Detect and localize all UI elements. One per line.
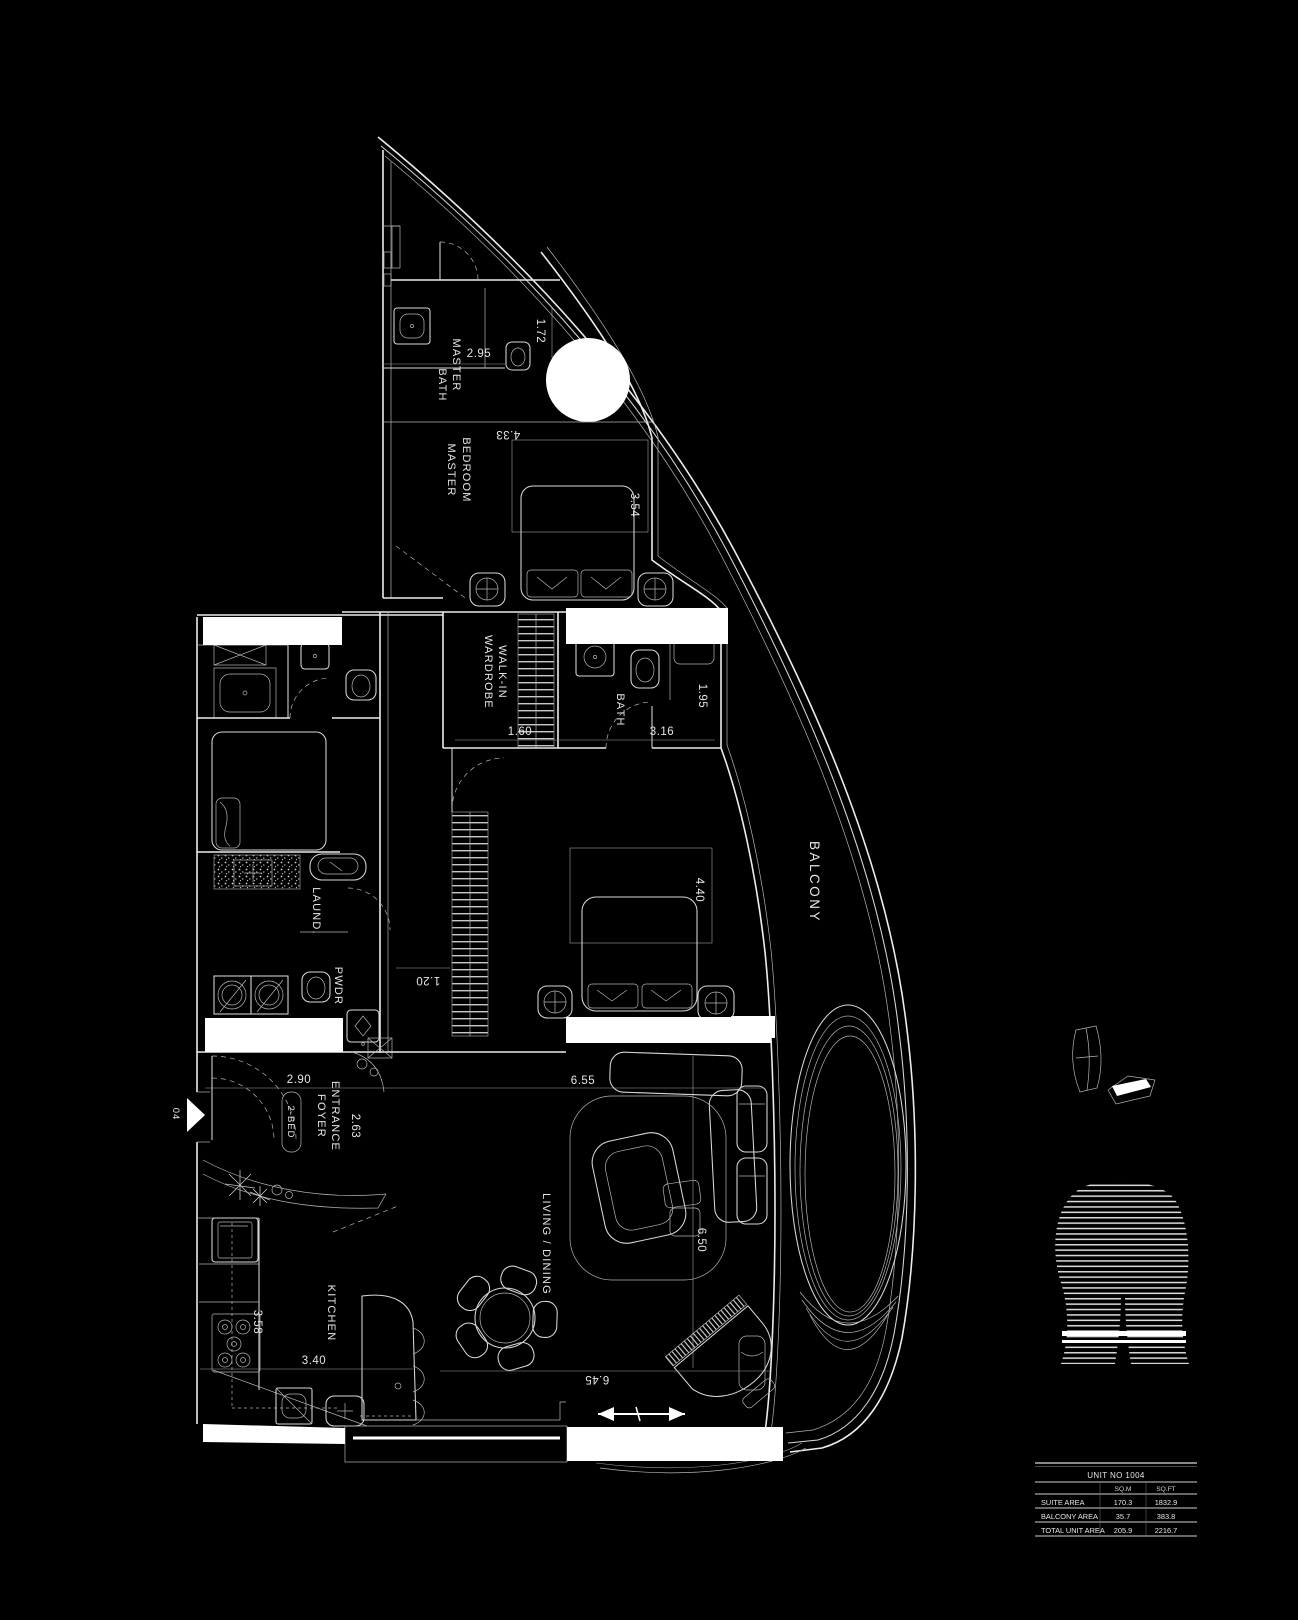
kitchen-island [362,1295,424,1425]
balcony-inner-wall [541,247,781,1432]
kitchen-label: KITCHEN [325,1285,337,1342]
bed2 [582,897,697,1011]
dim-living-south-width: 6.45 [585,1373,609,1385]
dim-bath-width: 3.16 [650,726,674,738]
master-bedroom: MASTER BEDROOM 4.33 3.54 [383,422,673,606]
total-area-sqm: 205.9 [1114,1526,1133,1535]
laundry-sink [310,854,366,880]
washer-dryer [214,976,288,1014]
entrance-foyer: 2.90 04 2-BED ENTRANCE FOYER 2.63 [170,1038,763,1232]
area-table: UNIT NO 1004 SQ.M SQ.FT SUITE AREA 170.3… [1035,1463,1197,1536]
master-bath-tub [546,338,630,422]
area-table-row-suite: SUITE AREA 170.3 1832.9 [1041,1498,1177,1507]
floor-plan-canvas: BALCONY [0,0,1298,1620]
master-bath: MASTER BATH 2.95 1.72 [383,150,630,598]
dim-kitchen-width: 3.40 [302,1355,326,1367]
unit-type-tag-label: 2-BED [285,1106,296,1139]
wardrobe-label-line2: WARDROBE [482,635,494,709]
entry-arrow-icon [187,1098,205,1132]
powder-label: PWDR [332,967,344,1005]
balcony-area-sqft: 383.8 [1157,1512,1176,1521]
living-dining-label: LIVING / DINING [540,1193,552,1295]
sofa [570,1052,757,1280]
dim-living-width: 6.55 [571,1075,595,1087]
total-area-sqft: 2216.7 [1155,1526,1178,1535]
dim-master-bedroom-width: 4.33 [496,428,520,440]
floor-plan-page: BALCONY [0,0,1298,1620]
entry-marker-label: 04 [170,1108,181,1121]
maid-bed [212,732,326,850]
balcony-area-sqm: 35.7 [1116,1512,1130,1521]
dim-living-depth: 6.50 [695,1228,707,1252]
dim-foyer-width: 2.90 [287,1074,311,1086]
tower-silhouette [1055,1181,1189,1364]
dim-bedroom2-depth: 4.40 [693,878,705,902]
area-table-row-total: TOTAL UNIT AREA 205.9 2216.7 [1041,1526,1177,1535]
total-area-label: TOTAL UNIT AREA [1041,1526,1105,1535]
master-bed-nightstands [470,573,673,606]
foyer-label-line2: FOYER [315,1094,327,1138]
suite-area-label: SUITE AREA [1041,1498,1085,1507]
master-bath-label-line2: BATH [436,368,448,401]
laundry-label: LAUND. [310,887,322,935]
kitchen: KITCHEN 3.58 3.40 [197,1218,424,1426]
sliding-door-arrows [598,1407,685,1421]
dim-wardrobe-width: 1.60 [508,726,532,738]
dim-kitchen-depth: 3.58 [251,1310,263,1334]
key-plan-unit-highlight [1112,1079,1151,1096]
balcony-area-label: BALCONY AREA [1041,1512,1098,1521]
key-plan [1055,1026,1189,1364]
area-table-col-sqft: SQ.FT [1156,1486,1175,1493]
area-table-title: UNIT NO 1004 [1087,1471,1145,1480]
suite-area-sqft: 1832.9 [1155,1498,1178,1507]
dim-master-bath-depth: 1.72 [534,319,546,343]
bathroom2 [197,643,380,718]
dim-bath-depth: 1.95 [696,684,708,708]
balcony-loungers [737,1086,767,1390]
master-bed [521,486,634,600]
dim-corridor-width: 1.20 [416,974,440,986]
master-bath-toilet [506,342,530,370]
area-table-row-balcony: BALCONY AREA 35.7 383.8 [1041,1512,1175,1521]
bath-label: BATH [614,693,626,726]
dim-foyer-depth: 2.63 [349,1114,361,1138]
dim-master-bath-width: 2.95 [467,348,491,360]
fridge [212,1218,258,1262]
master-bath-label-line1: MASTER [450,338,462,391]
master-bedroom-label-line1: MASTER [445,443,457,496]
area-table-col-sqm: SQ.M [1115,1486,1132,1493]
curved-facade [378,137,915,1473]
master-bedroom-label-line2: BEDROOM [460,437,472,502]
bed2-nightstands [538,986,734,1020]
foyer-label-line1: ENTRANCE [329,1081,341,1151]
wardrobe-label-line1: WALK-IN [496,645,508,699]
balcony-pool [790,1005,906,1350]
dim-master-bedroom-depth: 3.54 [628,493,640,517]
living-dining: 6.55 LIVING / DINING 6.50 [345,1052,799,1462]
laundry-powder: LAUND. PWDR [214,854,390,1045]
suite-area-sqm: 170.3 [1114,1498,1133,1507]
balcony-label: BALCONY [807,841,822,923]
